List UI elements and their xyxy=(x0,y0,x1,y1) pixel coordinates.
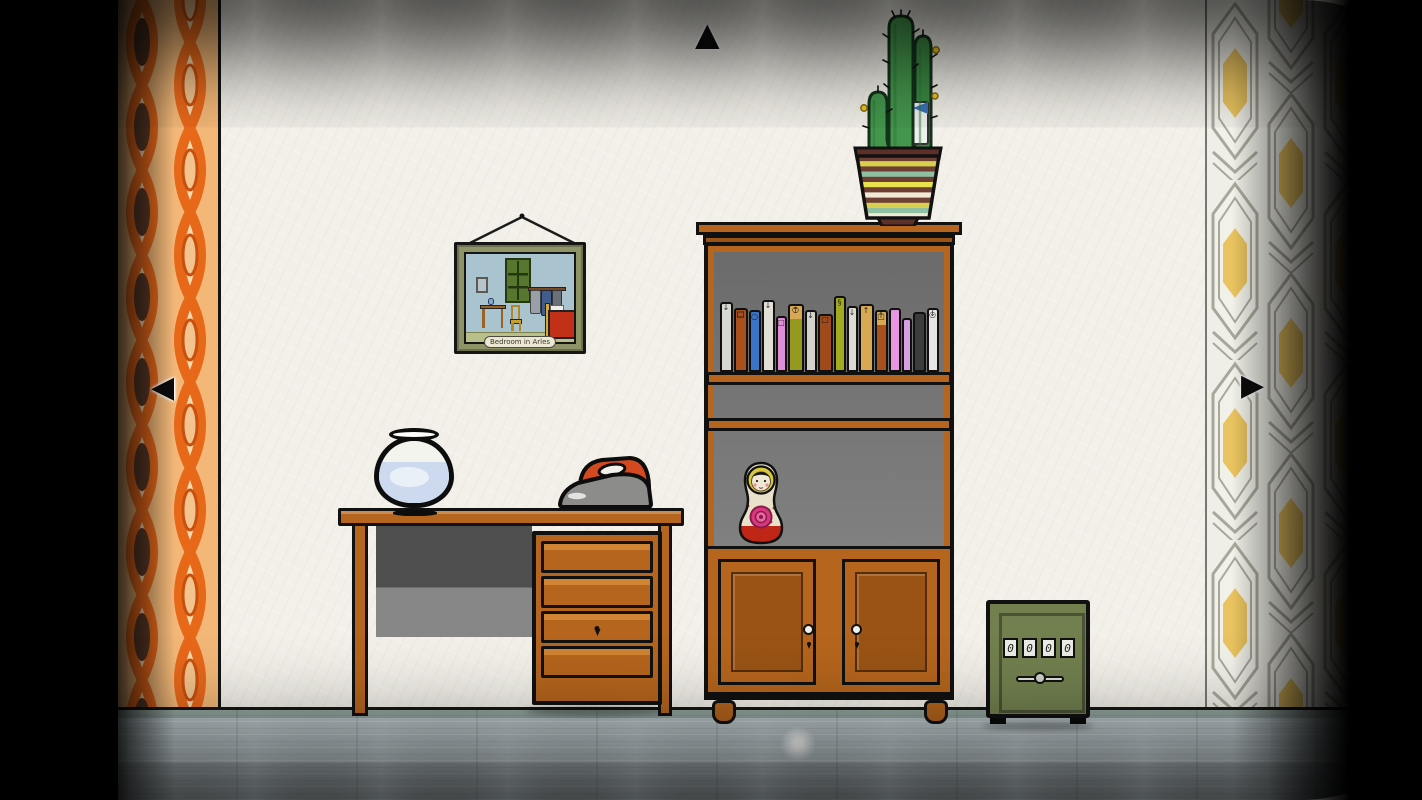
bookshelf-foot xyxy=(924,700,948,724)
book-spine[interactable]: ↓ xyxy=(762,300,775,372)
bookshelf-cabinet xyxy=(708,546,950,692)
up-arrow-icon[interactable]: ▲ xyxy=(695,18,720,50)
picture-art-bedroom-scene xyxy=(464,252,576,344)
pot-foot xyxy=(878,218,918,226)
clothes-iron[interactable] xyxy=(556,450,658,512)
wall-corner-left xyxy=(218,0,221,800)
keyhole-icon[interactable] xyxy=(855,642,859,646)
desk-drawer-3[interactable] xyxy=(541,611,653,643)
door-knob[interactable] xyxy=(803,624,814,635)
door-knob[interactable] xyxy=(851,624,862,635)
picture-frame: Bedroom in Arles xyxy=(454,242,586,354)
art-bed xyxy=(548,310,576,339)
fishbowl[interactable] xyxy=(374,428,458,516)
fishbowl-rim xyxy=(389,428,439,441)
cabinet-door-right[interactable] xyxy=(842,559,940,685)
safe-dial-row[interactable]: 0000 xyxy=(1003,638,1075,658)
wallpaper-right xyxy=(1207,0,1350,800)
right-arrow-icon[interactable]: ▶ xyxy=(1241,371,1264,401)
book-spine[interactable]: ○↓ xyxy=(927,308,939,372)
game-scene: Bedroom in Arles xyxy=(0,0,1422,800)
hanging-string xyxy=(460,212,584,246)
art-small-frame xyxy=(476,277,488,293)
book-spine[interactable]: § xyxy=(834,296,846,372)
book-spine[interactable]: □□ xyxy=(734,308,748,372)
safe-handle-knob[interactable] xyxy=(1034,672,1046,684)
shelf-board xyxy=(706,418,952,431)
art-jug xyxy=(488,298,494,305)
keyhole-icon[interactable] xyxy=(807,642,811,646)
book-spine[interactable]: ↑○ xyxy=(788,304,804,372)
cabinet-door-left[interactable] xyxy=(718,559,816,685)
bookshelf-foot xyxy=(712,700,736,724)
bookshelf-base xyxy=(704,692,954,700)
desk xyxy=(336,506,688,728)
book-spine[interactable]: ○ xyxy=(749,310,761,372)
book-spine[interactable] xyxy=(889,308,901,372)
desk-drawer-unit[interactable] xyxy=(532,531,662,705)
desk-leg xyxy=(352,526,368,716)
art-window xyxy=(505,258,531,303)
art-coat xyxy=(530,290,541,314)
book-spine[interactable]: □↑ xyxy=(875,310,888,372)
book-row[interactable]: ↓□□○↓□↑○↓□§↓↑□↑○↓ xyxy=(716,294,942,372)
fishbowl-water xyxy=(379,462,449,503)
combination-safe[interactable]: 0000 xyxy=(986,600,1090,728)
book-spine[interactable] xyxy=(913,312,926,372)
desk-drawer-1[interactable] xyxy=(541,541,653,573)
safe-dial[interactable]: 0 xyxy=(1041,638,1056,658)
framed-picture[interactable]: Bedroom in Arles xyxy=(452,212,592,362)
safe-dial[interactable]: 0 xyxy=(1003,638,1018,658)
bookshelf: ↓□□○↓□↑○↓□§↓↑□↑○↓ xyxy=(694,220,970,732)
floor-sparkle[interactable] xyxy=(780,726,816,762)
fishbowl-glass[interactable] xyxy=(374,436,454,508)
book-spine[interactable]: ↓ xyxy=(720,302,733,372)
desk-drawer-4[interactable] xyxy=(541,646,653,678)
fishbowl-base xyxy=(393,510,437,516)
book-spine[interactable]: ↓ xyxy=(805,310,817,372)
left-arrow-icon[interactable]: ◀ xyxy=(151,373,174,403)
desk-drawer-2[interactable] xyxy=(541,576,653,608)
safe-door-panel xyxy=(999,613,1085,713)
book-spine[interactable]: □ xyxy=(776,316,787,372)
cactus-plant[interactable] xyxy=(842,8,954,226)
book-spine[interactable]: ↓ xyxy=(847,306,858,372)
wall-corner-right xyxy=(1205,0,1207,800)
shelf-board xyxy=(706,372,952,385)
safe-dial[interactable]: 0 xyxy=(1060,638,1075,658)
keyhole-icon[interactable] xyxy=(595,626,600,631)
desk-back-panel xyxy=(376,525,532,637)
picture-caption-plaque: Bedroom in Arles xyxy=(484,336,556,348)
book-spine[interactable]: □ xyxy=(818,314,833,372)
bookshelf-frame: ↓□□○↓□↑○↓□§↓↑□↑○↓ xyxy=(704,242,954,694)
safe-dial[interactable]: 0 xyxy=(1022,638,1037,658)
book-spine[interactable] xyxy=(902,318,912,372)
desk-shadow xyxy=(526,706,668,716)
safe-body[interactable]: 0000 xyxy=(986,600,1090,718)
matryoshka-doll[interactable] xyxy=(734,458,788,546)
book-spine[interactable]: ↑ xyxy=(859,304,874,372)
